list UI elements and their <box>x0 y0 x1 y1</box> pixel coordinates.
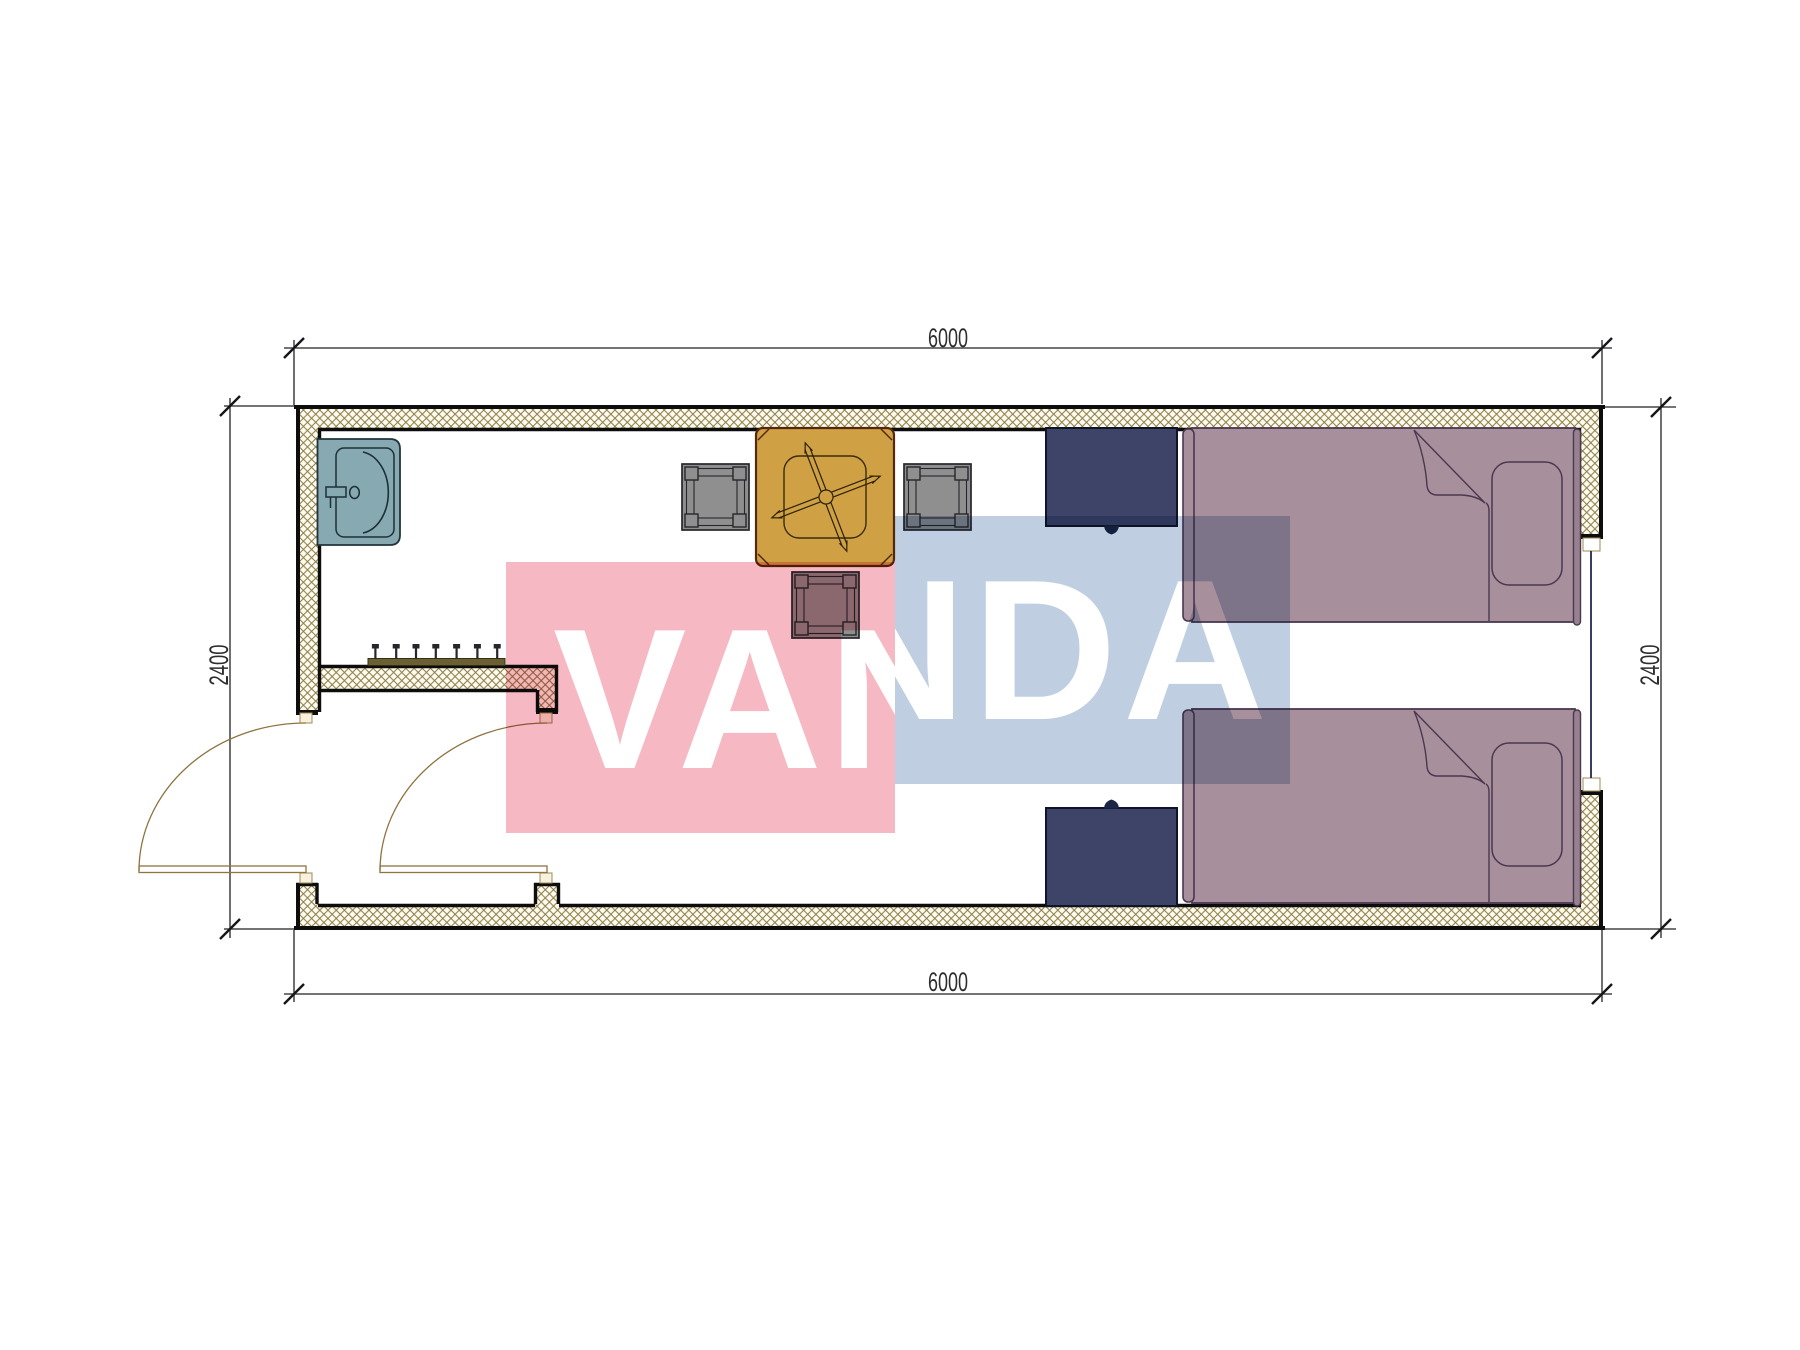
svg-text:6000: 6000 <box>928 323 968 353</box>
svg-text:2400: 2400 <box>1635 645 1665 686</box>
svg-text:VANDA: VANDA <box>547 539 1273 762</box>
svg-text:2400: 2400 <box>204 645 234 686</box>
svg-text:6000: 6000 <box>928 967 968 997</box>
